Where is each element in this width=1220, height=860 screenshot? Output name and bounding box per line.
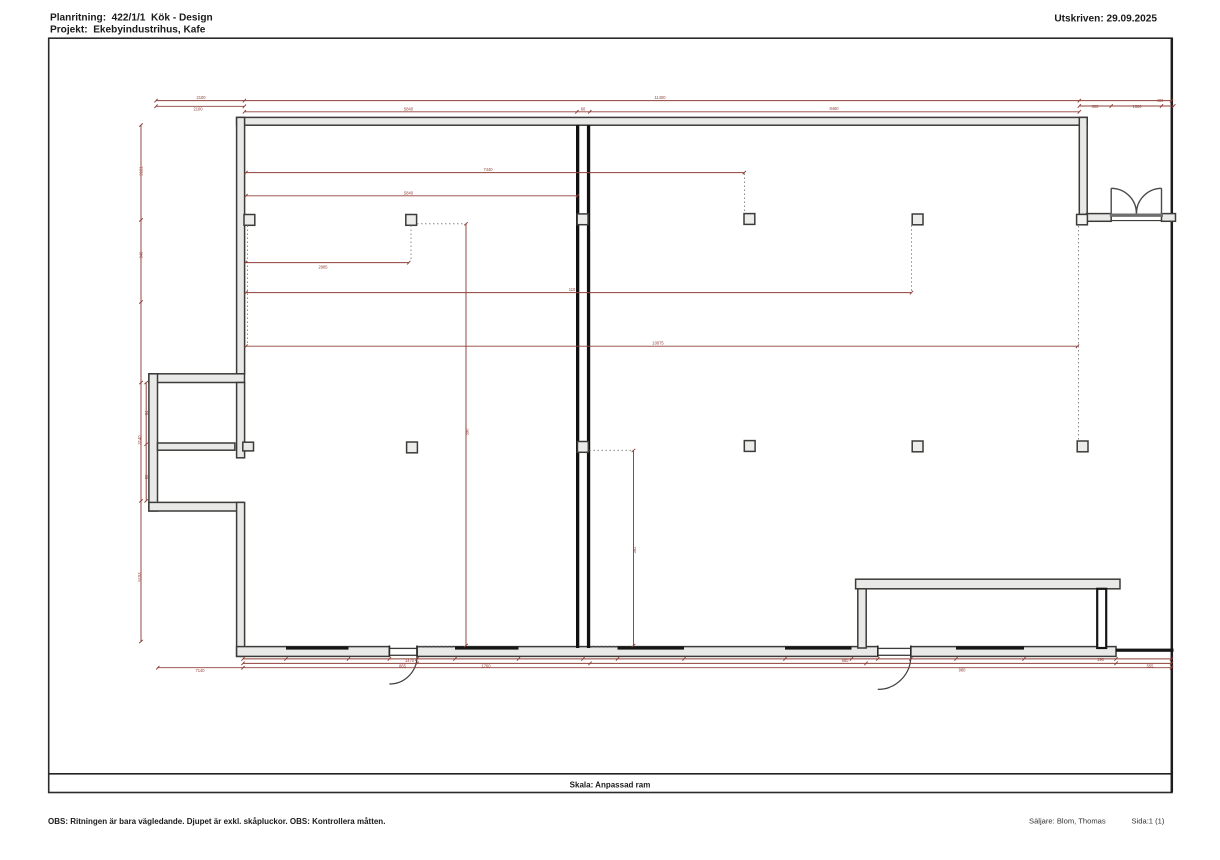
svg-text:11400: 11400 xyxy=(654,95,666,100)
svg-text:5840: 5840 xyxy=(404,106,414,111)
svg-text:2100: 2100 xyxy=(196,95,206,100)
svg-text:2121: 2121 xyxy=(139,166,144,176)
svg-text:390: 390 xyxy=(464,428,469,436)
svg-text:OBS: Ritningen är bara vägleda: OBS: Ritningen är bara vägledande. Djupe… xyxy=(48,817,385,826)
svg-text:Projekt: Ekebyindustrihus, Ka: Projekt: Ekebyindustrihus, Kafe xyxy=(50,24,206,35)
svg-text:Säljare: Blom, Thomas: Säljare: Blom, Thomas xyxy=(1029,816,1106,825)
svg-text:1760: 1760 xyxy=(481,664,491,669)
svg-text:7440: 7440 xyxy=(483,167,493,172)
svg-text:3140: 3140 xyxy=(137,435,142,445)
svg-text:10075: 10075 xyxy=(652,341,664,346)
svg-text:2100: 2100 xyxy=(193,106,203,111)
svg-text:Planritning: 422/1/1 Kök - D: Planritning: 422/1/1 Kök - Design xyxy=(50,12,213,23)
svg-text:5840: 5840 xyxy=(404,190,414,195)
svg-text:880: 880 xyxy=(842,658,850,663)
svg-text:90: 90 xyxy=(144,474,149,479)
svg-text:110: 110 xyxy=(569,287,576,292)
svg-text:555: 555 xyxy=(1147,663,1155,668)
svg-text:2985: 2985 xyxy=(318,265,328,270)
svg-text:190: 190 xyxy=(1097,657,1105,662)
svg-text:Skala: Anpassad ram: Skala: Anpassad ram xyxy=(570,780,651,789)
svg-text:865: 865 xyxy=(399,664,407,669)
svg-text:Sida:1 (1): Sida:1 (1) xyxy=(1132,816,1165,825)
svg-text:7140: 7140 xyxy=(195,668,205,673)
svg-text:1500: 1500 xyxy=(1132,104,1142,109)
svg-text:8460: 8460 xyxy=(829,106,839,111)
svg-text:400: 400 xyxy=(1157,98,1165,103)
svg-text:300: 300 xyxy=(1092,104,1100,109)
svg-text:980: 980 xyxy=(959,668,967,673)
svg-text:60: 60 xyxy=(581,106,586,111)
svg-text:94: 94 xyxy=(144,410,149,415)
svg-text:5153: 5153 xyxy=(137,572,142,582)
svg-text:940: 940 xyxy=(139,251,144,259)
svg-text:392: 392 xyxy=(632,546,637,554)
svg-text:1470: 1470 xyxy=(405,658,415,663)
svg-text:Utskriven: 29.09.2025: Utskriven: 29.09.2025 xyxy=(1054,14,1157,25)
